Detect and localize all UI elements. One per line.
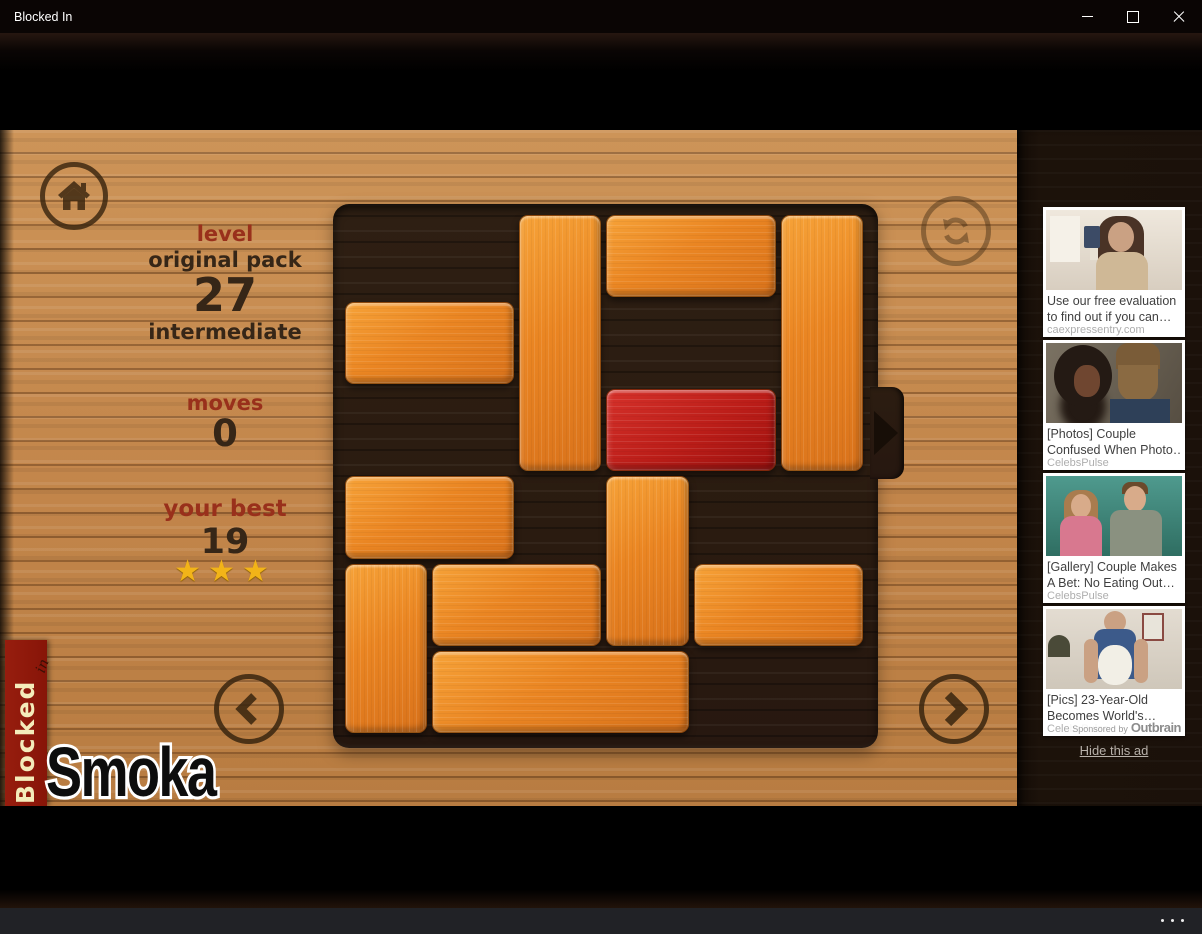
ad-title: Use our free evaluationto find out if yo… [1047,293,1181,325]
hide-ad-link[interactable]: Hide this ad [1043,743,1185,758]
puzzle-block[interactable] [519,215,601,472]
ad-card-3[interactable]: [Gallery] Couple MakesA Bet: No Eating O… [1043,473,1185,603]
exit-arrow-icon [874,411,898,455]
ad-title: [Photos] CoupleConfused When Photo… [1047,426,1181,458]
ad-image-3 [1046,476,1182,556]
close-button[interactable] [1156,0,1202,33]
title-bar: Blocked In [0,0,1202,33]
best-label: your best [100,496,350,522]
puzzle-block[interactable] [606,476,688,646]
home-icon [54,176,94,216]
chevron-right-icon [934,689,974,729]
puzzle-board [333,204,878,748]
puzzle-block[interactable] [781,215,863,472]
level-number: 27 [100,268,350,322]
puzzle-block[interactable] [345,564,427,734]
ad-source: CelebsPulse [1047,457,1181,469]
more-menu-button[interactable] [1159,917,1186,924]
restart-button[interactable] [921,196,991,266]
exit-slot [870,387,904,479]
star-rating: ★★★ [100,554,350,589]
chevron-left-icon [229,689,269,729]
puzzle-block[interactable] [432,564,602,646]
ad-card-2[interactable]: [Photos] CoupleConfused When Photo… Cele… [1043,340,1185,470]
letterbox-top [0,33,1202,130]
close-icon [1173,11,1185,23]
smoka-watermark: Smoka [46,732,215,812]
minimize-button[interactable] [1064,0,1110,33]
home-button[interactable] [40,162,108,230]
sponsored-by-badge[interactable]: Sponsored by Outbrain [1070,720,1183,735]
puzzle-block[interactable] [606,215,776,297]
ad-image-2 [1046,343,1182,423]
moves-value: 0 [100,412,350,455]
puzzle-block[interactable] [694,564,864,646]
difficulty-label: intermediate [100,320,350,344]
ad-source: caexpressentry.com [1047,324,1181,336]
target-block[interactable] [606,389,776,471]
ad-title: [Gallery] Couple MakesA Bet: No Eating O… [1047,559,1181,591]
game-stage: level original pack 27 intermediate move… [0,130,1202,806]
puzzle-block[interactable] [345,302,515,384]
board-blocks [344,214,868,738]
puzzle-block[interactable] [432,651,689,733]
ad-card-4[interactable]: [Pics] 23-Year-OldBecomes World's… Celeb… [1043,606,1185,736]
maximize-icon [1127,11,1139,23]
app-window: Blocked In level original pack 27 interm… [0,0,1202,934]
ad-image-4 [1046,609,1182,689]
window-controls [1064,0,1202,33]
window-title: Blocked In [14,10,72,24]
minimize-icon [1082,16,1093,18]
ad-source: CelebsPulse [1047,590,1181,602]
ad-sidebar: Use our free evaluationto find out if yo… [1017,130,1202,806]
ribbon-title: Blocked [11,654,40,804]
ad-card-1[interactable]: Use our free evaluationto find out if yo… [1043,207,1185,337]
previous-level-button[interactable] [214,674,284,744]
ad-image-1 [1046,210,1182,290]
outbrain-logo: Outbrain [1131,720,1181,735]
puzzle-block[interactable] [345,476,515,558]
blocked-ribbon: in Blocked [5,640,47,806]
maximize-button[interactable] [1110,0,1156,33]
app-bottom-bar [0,908,1202,934]
level-label: level [100,222,350,246]
refresh-icon [936,211,976,251]
next-level-button[interactable] [919,674,989,744]
letterbox-bottom [0,806,1202,908]
